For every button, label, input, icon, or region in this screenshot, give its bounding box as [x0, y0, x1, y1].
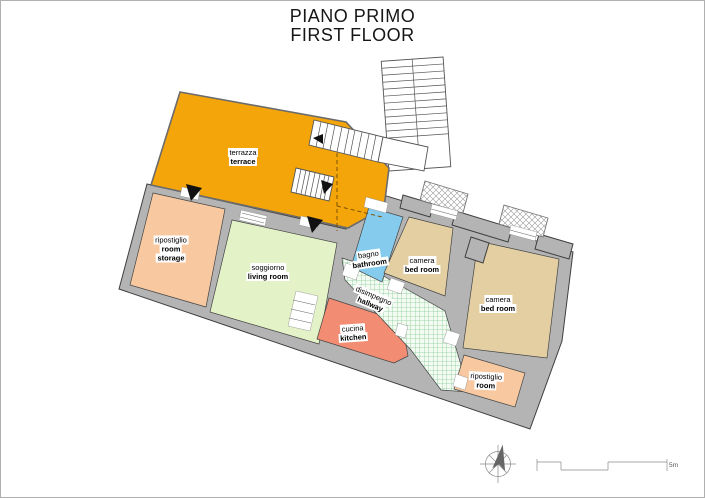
floor-plan-page: PIANO PRIMO FIRST FLOOR: [0, 0, 705, 498]
scale-bar: [537, 459, 667, 471]
room-label-storage-1: ripostiglio room storage: [154, 236, 189, 263]
room-label-living-room: soggiorno living room: [246, 263, 289, 281]
room-label-bedroom-2: camera bed room: [479, 295, 516, 313]
compass-rose-icon: [480, 443, 516, 483]
room-label-kitchen: cucina kitchen: [338, 323, 368, 343]
room-label-bedroom-1: camera bed room: [403, 256, 440, 274]
scale-bar-label: 5m: [669, 462, 678, 469]
room-label-storage-2: ripostiglio room: [468, 371, 504, 391]
floor-plan-drawing: [1, 1, 705, 498]
room-label-terrace: terrazza terrace: [228, 148, 258, 166]
